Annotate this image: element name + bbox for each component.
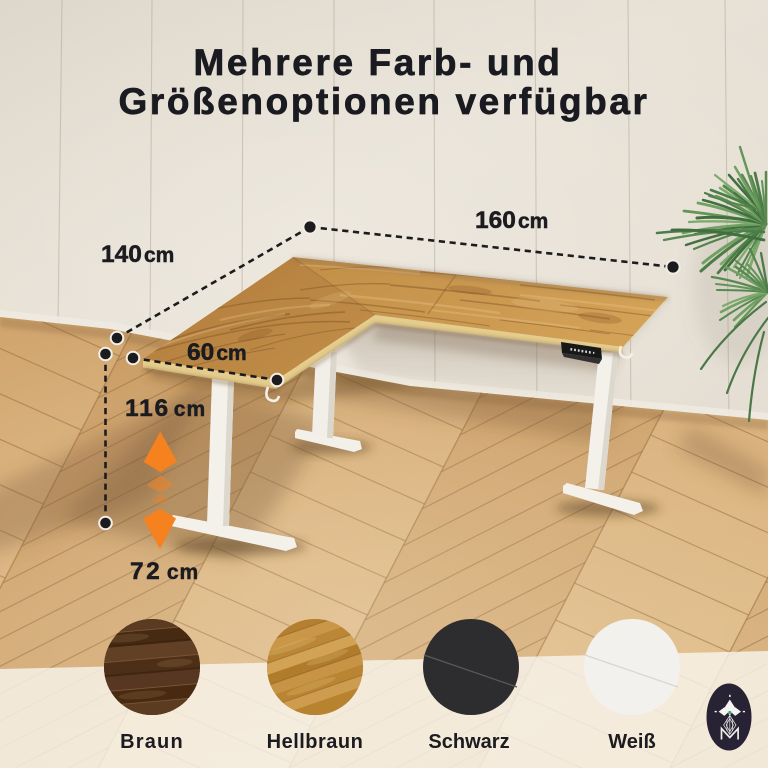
svg-text:Weiß: Weiß: [608, 731, 655, 753]
svg-text:60 cm: 60 cm: [187, 339, 247, 366]
svg-text:116 cm: 116 cm: [125, 395, 206, 422]
svg-text:140 cm: 140 cm: [101, 241, 174, 268]
svg-text:Hellbraun: Hellbraun: [267, 731, 364, 753]
svg-text:Braun: Braun: [120, 731, 184, 753]
svg-text:160 cm: 160 cm: [475, 207, 548, 234]
svg-text:Schwarz: Schwarz: [428, 731, 509, 753]
svg-text:Größenoptionen verfügbar: Größenoptionen verfügbar: [118, 81, 649, 122]
svg-text:Mehrere Farb- und: Mehrere Farb- und: [193, 42, 562, 83]
svg-text:72 cm: 72 cm: [130, 558, 199, 585]
